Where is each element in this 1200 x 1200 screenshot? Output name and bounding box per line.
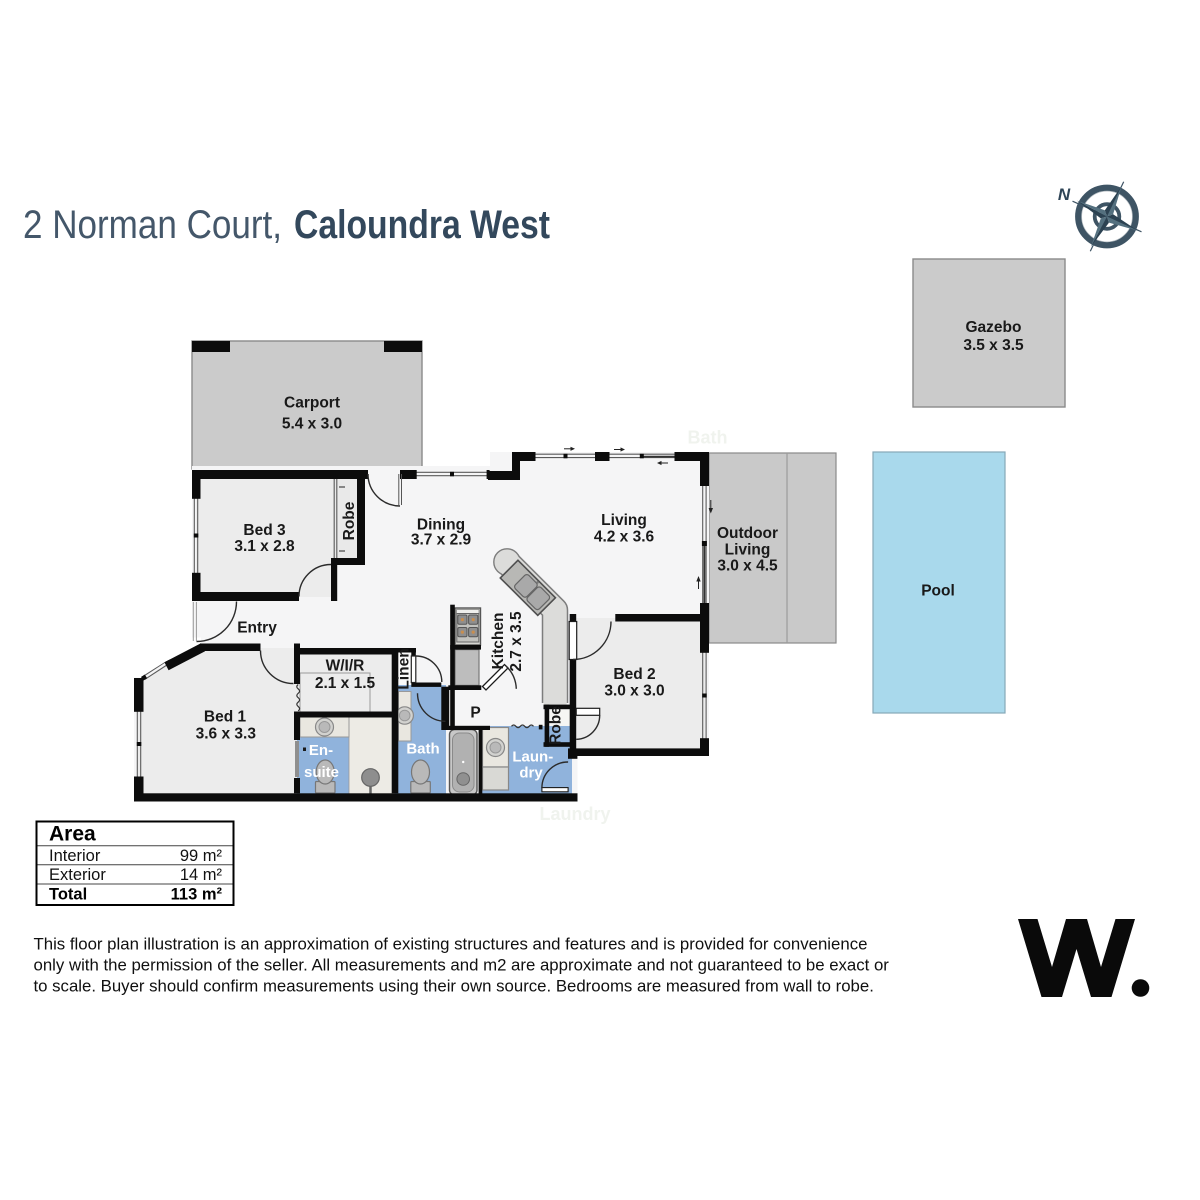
svg-text:2.7 x 3.5: 2.7 x 3.5	[508, 611, 525, 672]
svg-text:Bed 2: Bed 2	[613, 666, 655, 683]
svg-text:Linen: Linen	[396, 648, 413, 689]
svg-text:113 m²: 113 m²	[171, 886, 223, 904]
svg-text:Exterior: Exterior	[49, 866, 106, 884]
svg-text:5.4 x 3.0: 5.4 x 3.0	[282, 416, 342, 433]
svg-text:3.1 x 2.8: 3.1 x 2.8	[234, 538, 295, 555]
svg-text:Kitchen: Kitchen	[490, 613, 507, 670]
svg-text:2.1 x 1.5: 2.1 x 1.5	[315, 675, 376, 692]
svg-text:Bed 3: Bed 3	[243, 522, 286, 539]
svg-text:dry: dry	[519, 765, 543, 782]
svg-text:to scale. Buyer should confirm: to scale. Buyer should confirm measureme…	[34, 977, 874, 996]
svg-text:En-: En-	[309, 742, 333, 759]
svg-text:3.5 x 3.5: 3.5 x 3.5	[963, 337, 1024, 354]
svg-text:2 Norman Court,: 2 Norman Court,	[23, 203, 282, 247]
svg-text:Caloundra West: Caloundra West	[294, 203, 550, 247]
svg-text:Carport: Carport	[284, 395, 340, 412]
svg-text:P: P	[470, 705, 480, 722]
svg-text:4.2 x 3.6: 4.2 x 3.6	[594, 529, 655, 546]
svg-text:Bed 1: Bed 1	[204, 709, 247, 726]
svg-text:Area: Area	[49, 823, 96, 846]
svg-text:Outdoor: Outdoor	[717, 525, 778, 542]
svg-text:3.6 x 3.3: 3.6 x 3.3	[196, 726, 257, 743]
svg-text:Pool: Pool	[921, 583, 955, 600]
svg-text:W/I/R: W/I/R	[326, 658, 365, 675]
svg-text:only with the permission of th: only with the permission of the seller. …	[34, 956, 890, 975]
svg-text:N: N	[1058, 185, 1071, 204]
svg-text:Total: Total	[49, 886, 87, 904]
svg-text:14 m²: 14 m²	[180, 866, 223, 884]
svg-text:suite: suite	[304, 764, 339, 781]
svg-text:Interior: Interior	[49, 847, 101, 865]
svg-text:This floor plan illustration i: This floor plan illustration is an appro…	[34, 935, 868, 954]
svg-text:Entry: Entry	[237, 620, 277, 637]
svg-text:3.0 x 4.5: 3.0 x 4.5	[717, 558, 778, 575]
svg-text:Bath: Bath	[406, 740, 439, 757]
svg-text:3.0 x 3.0: 3.0 x 3.0	[604, 683, 664, 700]
svg-text:Laun-: Laun-	[512, 748, 553, 765]
svg-text:Robe: Robe	[548, 706, 565, 745]
svg-text:Laundry: Laundry	[539, 804, 610, 824]
svg-text:3.7 x 2.9: 3.7 x 2.9	[411, 532, 472, 549]
svg-text:Living: Living	[601, 512, 647, 529]
svg-text:Living: Living	[725, 542, 771, 559]
svg-text:Gazebo: Gazebo	[966, 319, 1022, 336]
svg-text:Robe: Robe	[341, 501, 358, 540]
svg-text:Bath: Bath	[688, 427, 728, 447]
svg-text:99 m²: 99 m²	[180, 847, 223, 865]
